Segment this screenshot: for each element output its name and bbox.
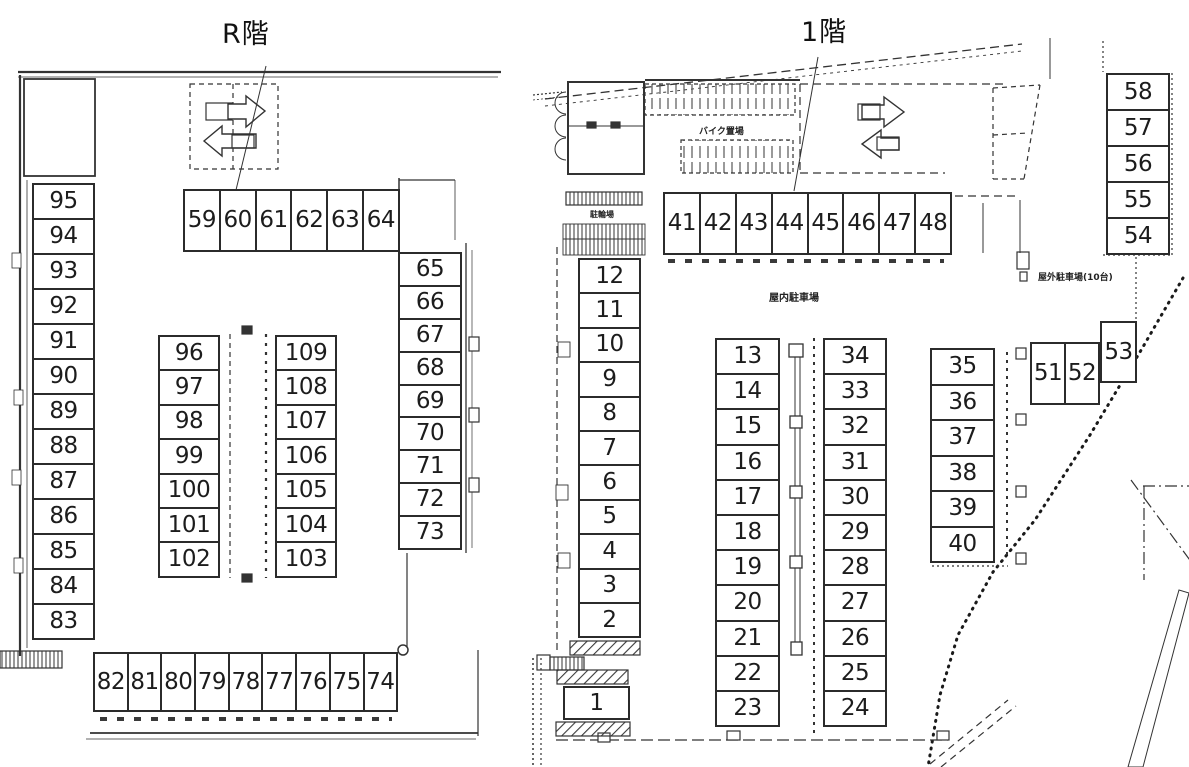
parking-stall: 55 xyxy=(1106,181,1170,219)
parking-stall: 2 xyxy=(578,602,641,638)
parking-stall: 84 xyxy=(32,568,95,605)
parking-stall: 42 xyxy=(699,192,737,255)
parking-stall: 48 xyxy=(914,192,952,255)
parking-stall: 87 xyxy=(32,463,95,500)
parking-stall: 41 xyxy=(663,192,701,255)
parking-stall: 33 xyxy=(823,373,887,410)
parking-stall: 109 xyxy=(275,335,337,371)
parking-stall: 107 xyxy=(275,404,337,440)
parking-stall: 67 xyxy=(398,318,462,353)
parking-stall: 21 xyxy=(715,620,780,657)
parking-stall: 19 xyxy=(715,549,780,586)
parking-stall: 17 xyxy=(715,479,780,516)
parking-stall: 74 xyxy=(363,652,399,712)
parking-stall: 52 xyxy=(1064,342,1100,405)
r-floor-top-row: 596061626364 xyxy=(183,189,400,252)
parking-stall: 89 xyxy=(32,393,95,430)
parking-stall: 82 xyxy=(93,652,129,712)
parking-stall: 100 xyxy=(158,473,220,509)
parking-stall: 47 xyxy=(878,192,916,255)
parking-stall: 86 xyxy=(32,498,95,535)
parking-stall: 20 xyxy=(715,584,780,621)
parking-stall: 63 xyxy=(326,189,364,252)
parking-stall: 16 xyxy=(715,444,780,481)
parking-stall: 13 xyxy=(715,338,780,375)
parking-stall: 58 xyxy=(1106,73,1170,111)
parking-stall: 80 xyxy=(160,652,196,712)
outdoor-parking-label: 屋外駐車場(10台) xyxy=(1038,270,1113,283)
first-floor-far-right-column: 5857565554 xyxy=(1106,73,1170,255)
parking-stall: 39 xyxy=(930,490,995,528)
parking-stall: 81 xyxy=(127,652,163,712)
r-floor-mid-right-column: 109108107106105104103 xyxy=(275,335,337,578)
parking-stall: 38 xyxy=(930,455,995,493)
parking-stall: 97 xyxy=(158,369,220,405)
parking-stall: 11 xyxy=(578,292,641,328)
parking-stall-1: 1 xyxy=(563,686,630,720)
parking-stall: 25 xyxy=(823,655,887,692)
parking-stall: 22 xyxy=(715,655,780,692)
parking-stall: 57 xyxy=(1106,109,1170,147)
parking-stall: 43 xyxy=(735,192,773,255)
parking-stall: 6 xyxy=(578,464,641,500)
parking-stall: 62 xyxy=(290,189,328,252)
parking-stall: 28 xyxy=(823,549,887,586)
parking-stall: 73 xyxy=(398,515,462,550)
bike-parking-label: バイク置場 xyxy=(699,124,744,137)
parking-stall: 83 xyxy=(32,603,95,640)
parking-stall: 5 xyxy=(578,499,641,535)
first-floor-title: 1階 xyxy=(801,10,847,49)
parking-stall: 36 xyxy=(930,384,995,422)
parking-stall: 54 xyxy=(1106,217,1170,255)
parking-stall: 15 xyxy=(715,408,780,445)
first-floor-top-row: 4142434445464748 xyxy=(663,192,952,255)
parking-stall: 51 xyxy=(1030,342,1066,405)
parking-stall: 32 xyxy=(823,408,887,445)
parking-stall: 27 xyxy=(823,584,887,621)
parking-stall: 60 xyxy=(219,189,257,252)
parking-stall: 99 xyxy=(158,438,220,474)
parking-stall: 69 xyxy=(398,384,462,419)
parking-stall: 92 xyxy=(32,288,95,325)
parking-stall: 37 xyxy=(930,419,995,457)
parking-floorplan: R階 1階 駐輪場 バイク置場 屋内駐車場 屋外駐車場(10台) 9594939… xyxy=(0,0,1189,767)
parking-stall: 105 xyxy=(275,473,337,509)
parking-stall: 76 xyxy=(295,652,331,712)
parking-stall: 45 xyxy=(807,192,845,255)
parking-stall: 72 xyxy=(398,482,462,517)
parking-stall: 3 xyxy=(578,568,641,604)
parking-stall: 8 xyxy=(578,396,641,432)
parking-stall: 93 xyxy=(32,253,95,290)
parking-stall: 4 xyxy=(578,533,641,569)
parking-stall: 44 xyxy=(771,192,809,255)
parking-stall-53: 53 xyxy=(1100,321,1137,383)
parking-stall: 23 xyxy=(715,690,780,727)
parking-stall: 102 xyxy=(158,541,220,577)
parking-stall: 12 xyxy=(578,258,641,294)
parking-stall: 9 xyxy=(578,361,641,397)
parking-stall: 75 xyxy=(329,652,365,712)
r-floor-right-column: 656667686970717273 xyxy=(398,252,462,550)
first-floor-left-column: 12111098765432 xyxy=(578,258,641,638)
parking-stall: 14 xyxy=(715,373,780,410)
parking-stall: 85 xyxy=(32,533,95,570)
r-floor-bottom-row: 828180797877767574 xyxy=(93,652,398,712)
parking-stall: 104 xyxy=(275,507,337,543)
parking-stall: 71 xyxy=(398,449,462,484)
parking-stall: 77 xyxy=(261,652,297,712)
parking-stall: 65 xyxy=(398,252,462,287)
parking-stall: 35 xyxy=(930,348,995,386)
r-floor-left-column: 95949392919089888786858483 xyxy=(32,183,95,640)
parking-stall: 106 xyxy=(275,438,337,474)
parking-stall: 90 xyxy=(32,358,95,395)
r-floor-mid-left-column: 96979899100101102 xyxy=(158,335,220,578)
parking-stall: 29 xyxy=(823,514,887,551)
parking-stall: 101 xyxy=(158,507,220,543)
first-floor-mid-left-column: 1314151617181920212223 xyxy=(715,338,780,727)
parking-stall: 68 xyxy=(398,351,462,386)
parking-stall: 40 xyxy=(930,526,995,564)
parking-stall: 79 xyxy=(194,652,230,712)
first-floor-pair-row: 5152 xyxy=(1030,342,1100,405)
parking-stall: 56 xyxy=(1106,145,1170,183)
parking-stall: 7 xyxy=(578,430,641,466)
indoor-parking-label: 屋内駐車場 xyxy=(769,289,819,304)
parking-stall: 46 xyxy=(842,192,880,255)
parking-stall: 18 xyxy=(715,514,780,551)
parking-stall: 10 xyxy=(578,327,641,363)
r-floor-title: R階 xyxy=(222,12,270,51)
parking-stall: 66 xyxy=(398,285,462,320)
parking-stall: 34 xyxy=(823,338,887,375)
parking-stall: 91 xyxy=(32,323,95,360)
parking-stall: 26 xyxy=(823,620,887,657)
parking-stall: 94 xyxy=(32,218,95,255)
first-floor-mid-right-column: 3433323130292827262524 xyxy=(823,338,887,727)
parking-stall: 103 xyxy=(275,541,337,577)
parking-stall: 70 xyxy=(398,416,462,451)
parking-stall: 64 xyxy=(362,189,400,252)
parking-stall: 30 xyxy=(823,479,887,516)
parking-stall: 95 xyxy=(32,183,95,220)
parking-stall: 98 xyxy=(158,404,220,440)
parking-stall: 31 xyxy=(823,444,887,481)
bicycle-parking-label: 駐輪場 xyxy=(590,209,614,220)
parking-stall: 88 xyxy=(32,428,95,465)
parking-stall: 78 xyxy=(228,652,264,712)
parking-stall: 108 xyxy=(275,369,337,405)
parking-stall: 24 xyxy=(823,690,887,727)
parking-stall: 61 xyxy=(255,189,293,252)
parking-stall: 96 xyxy=(158,335,220,371)
first-floor-right-column: 353637383940 xyxy=(930,348,995,563)
parking-stall: 59 xyxy=(183,189,221,252)
